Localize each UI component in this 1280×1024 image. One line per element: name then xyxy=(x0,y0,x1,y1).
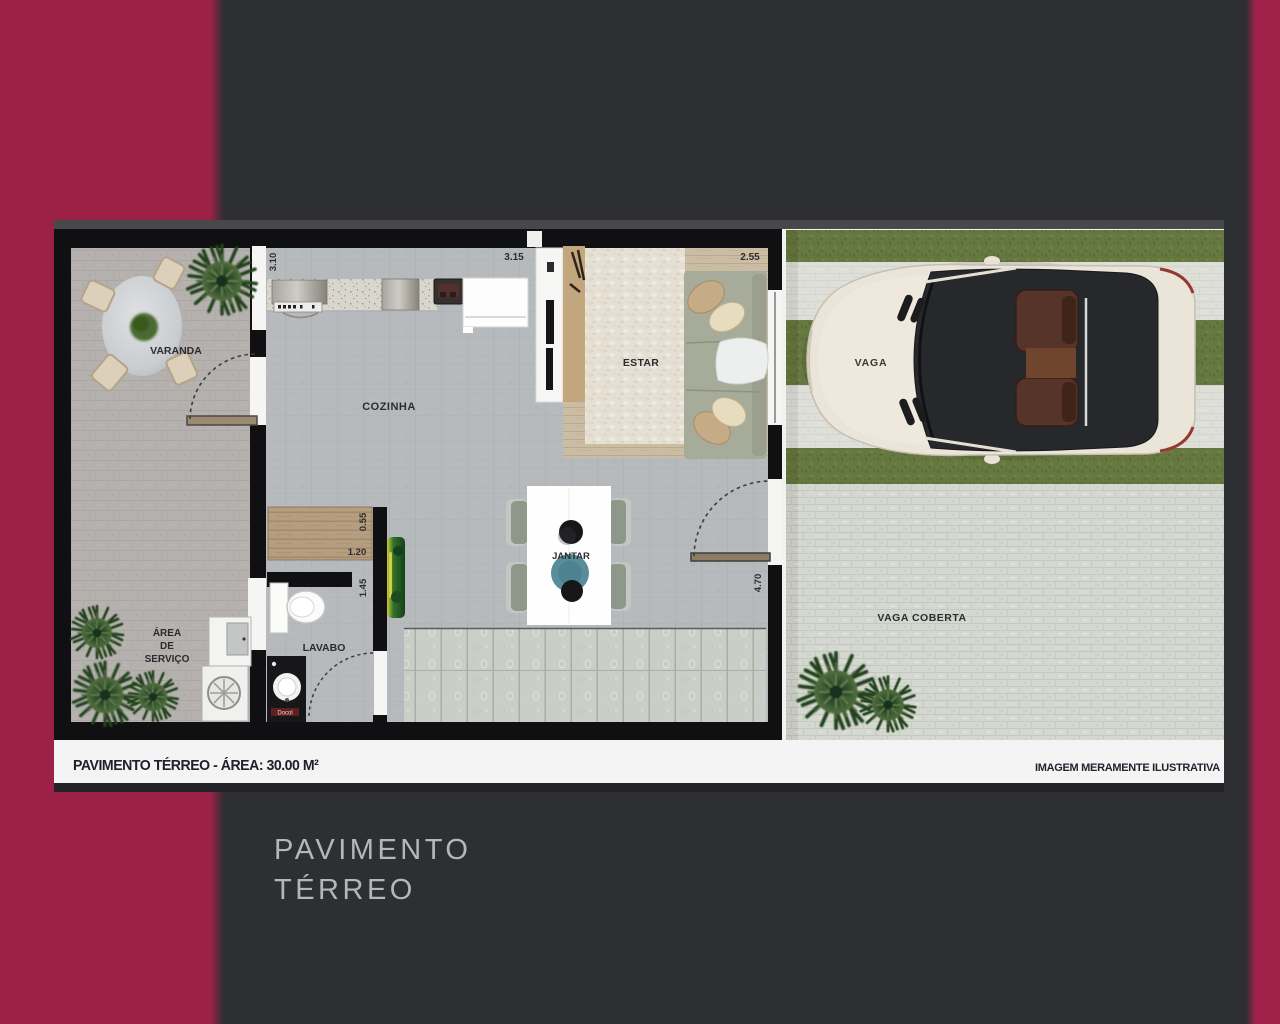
svg-text:4.70: 4.70 xyxy=(753,574,764,593)
svg-text:VARANDA: VARANDA xyxy=(150,345,202,357)
svg-text:3.15: 3.15 xyxy=(504,252,524,263)
svg-text:ESTAR: ESTAR xyxy=(623,357,659,369)
svg-text:0.55: 0.55 xyxy=(358,512,369,531)
svg-text:SERVIÇO: SERVIÇO xyxy=(145,654,190,665)
svg-text:JANTAR: JANTAR xyxy=(552,551,590,562)
svg-text:2.55: 2.55 xyxy=(740,252,760,263)
svg-text:DE: DE xyxy=(160,641,174,652)
svg-text:3.10: 3.10 xyxy=(268,253,279,272)
svg-text:1.20: 1.20 xyxy=(348,547,367,558)
svg-text:VAGA COBERTA: VAGA COBERTA xyxy=(877,612,966,624)
svg-text:COZINHA: COZINHA xyxy=(362,401,416,413)
svg-text:LAVABO: LAVABO xyxy=(303,642,346,654)
svg-text:1.45: 1.45 xyxy=(358,578,369,597)
svg-text:VAGA: VAGA xyxy=(855,357,888,369)
svg-text:ÁREA: ÁREA xyxy=(153,626,181,639)
svg-text:Docol: Docol xyxy=(277,711,292,717)
